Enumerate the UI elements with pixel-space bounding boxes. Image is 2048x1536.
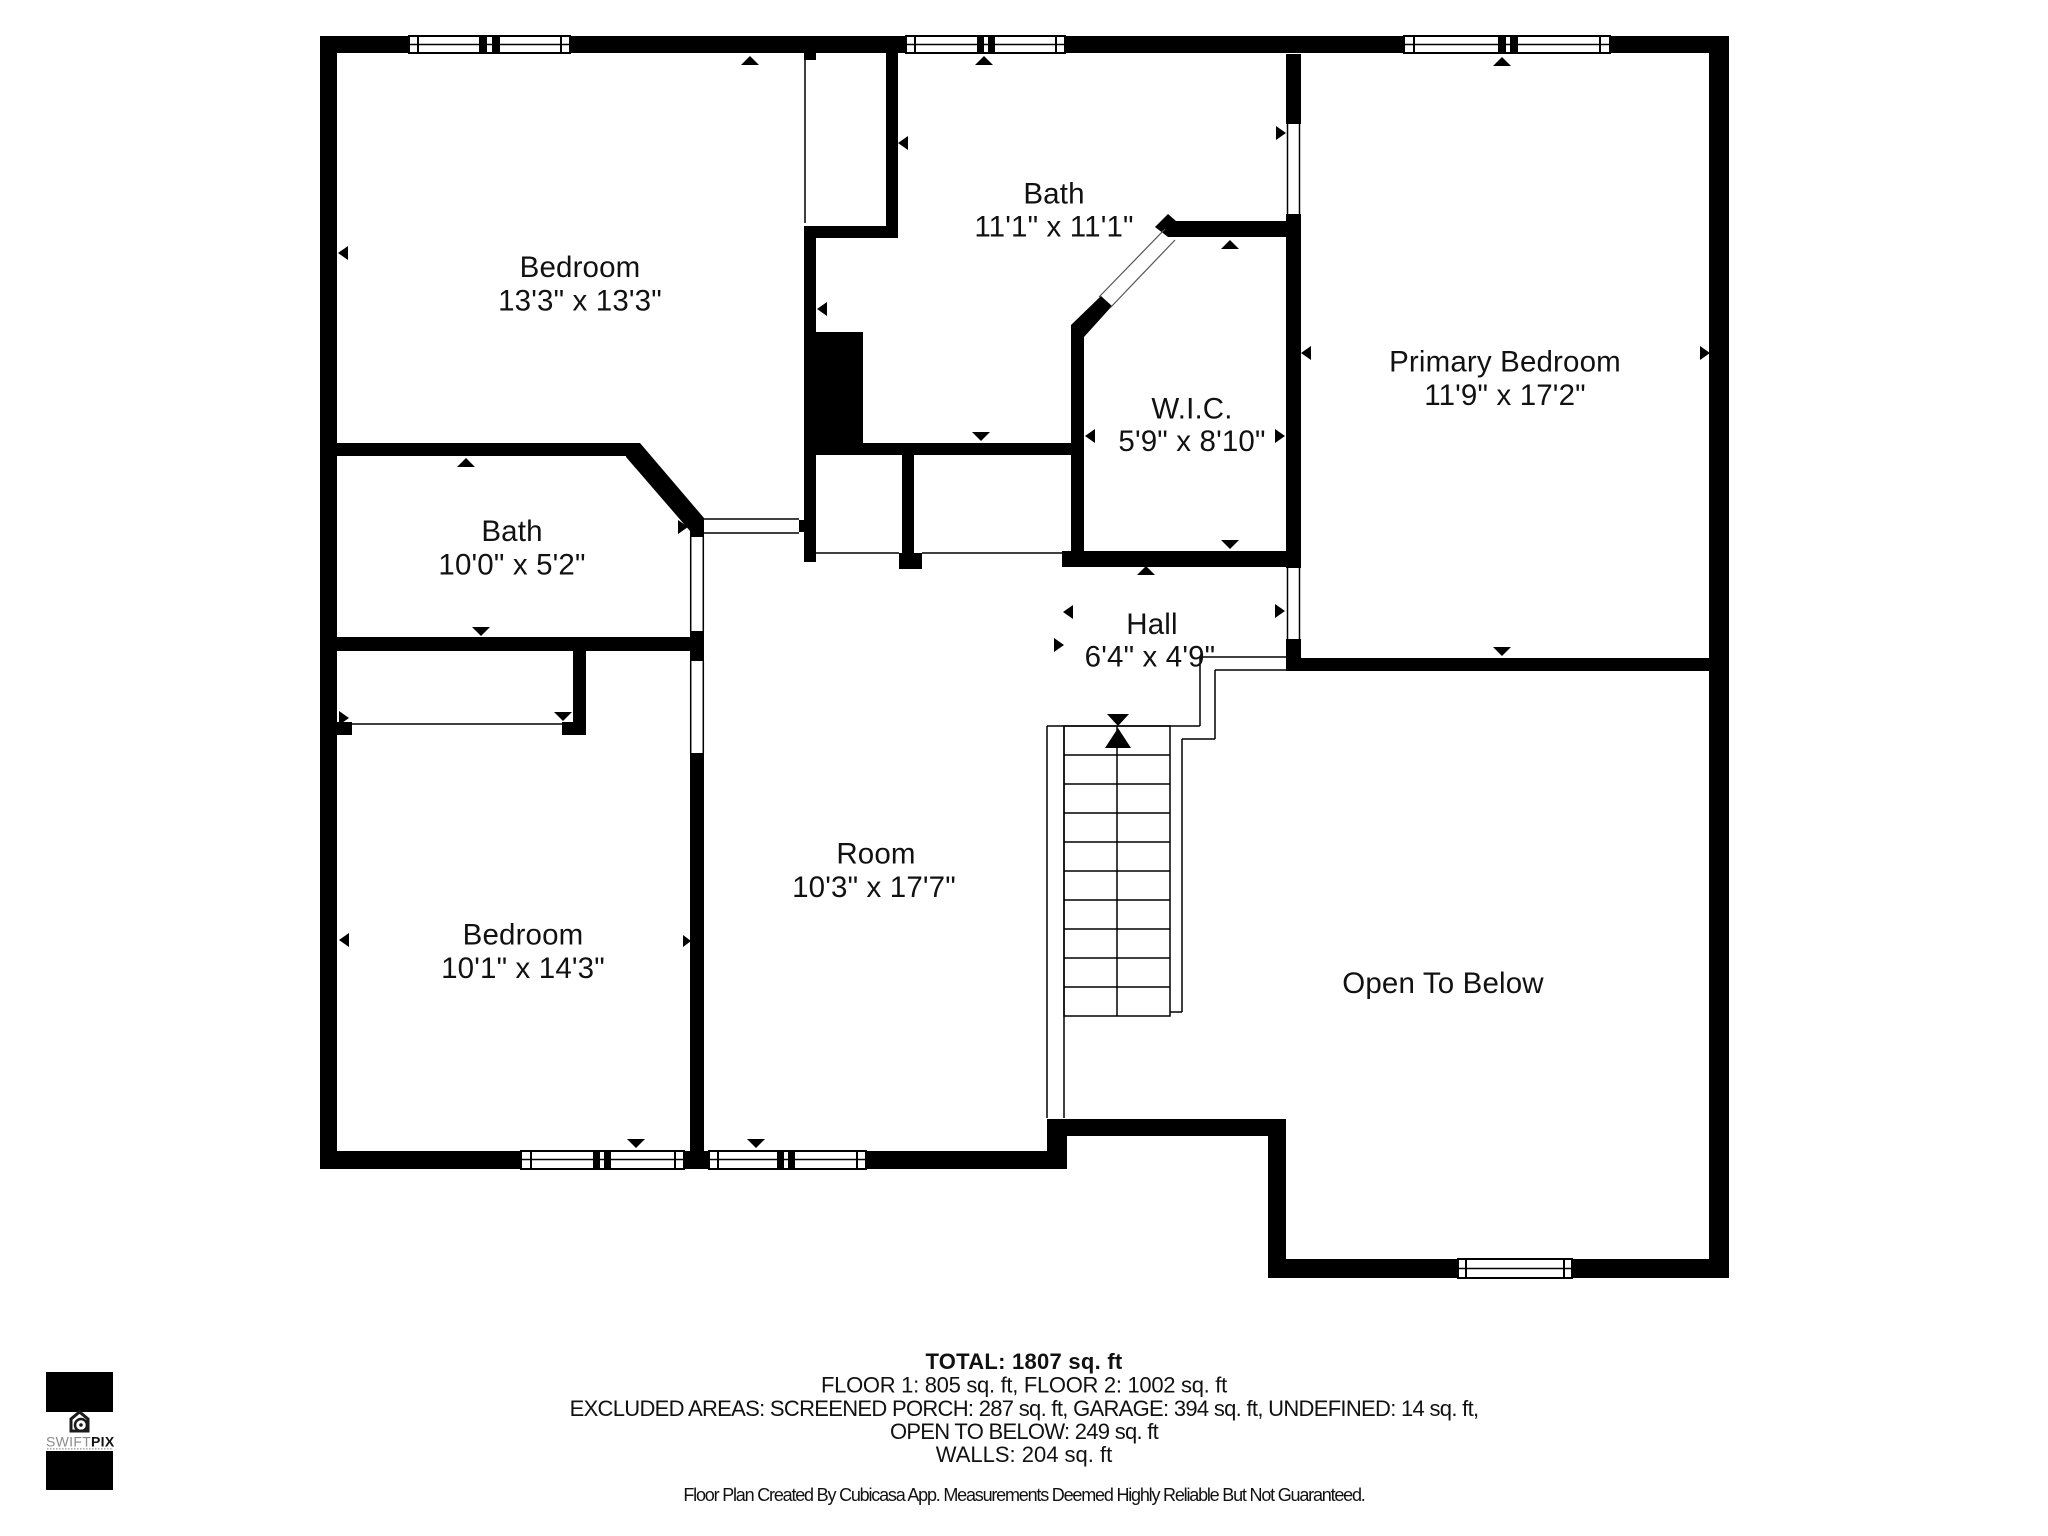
svg-text:11'1" x 11'1": 11'1" x 11'1"	[974, 211, 1133, 244]
svg-text:SWIFTPIX: SWIFTPIX	[46, 1434, 115, 1450]
svg-text:Open To Below: Open To Below	[1342, 967, 1544, 1000]
svg-text:Primary Bedroom: Primary Bedroom	[1389, 346, 1621, 379]
svg-text:Bath: Bath	[481, 515, 542, 548]
svg-text:Room: Room	[836, 838, 915, 871]
svg-text:Bath: Bath	[1023, 178, 1084, 211]
svg-text:Bedroom: Bedroom	[520, 251, 641, 284]
svg-text:10'0" x 5'2": 10'0" x 5'2"	[438, 549, 585, 582]
svg-text:W.I.C.: W.I.C.	[1151, 393, 1232, 426]
svg-text:WALLS: 204 sq. ft: WALLS: 204 sq. ft	[936, 1442, 1113, 1467]
svg-text:Floor Plan Created By Cubicasa: Floor Plan Created By Cubicasa App. Meas…	[683, 1485, 1364, 1505]
svg-text:5'9" x 8'10": 5'9" x 8'10"	[1118, 425, 1265, 458]
svg-text:Hall: Hall	[1126, 608, 1177, 641]
svg-text:10'3" x 17'7": 10'3" x 17'7"	[792, 871, 956, 904]
svg-text:FLOOR 1: 805 sq. ft, FLOOR 2:: FLOOR 1: 805 sq. ft, FLOOR 2: 1002 sq. f…	[821, 1373, 1227, 1398]
svg-text:Bedroom: Bedroom	[463, 919, 584, 952]
svg-text:13'3" x 13'3": 13'3" x 13'3"	[498, 285, 662, 318]
svg-text:10'1" x 14'3": 10'1" x 14'3"	[441, 952, 605, 985]
svg-text:OPEN TO BELOW: 249 sq. ft: OPEN TO BELOW: 249 sq. ft	[890, 1419, 1159, 1444]
svg-text:EXCLUDED AREAS: SCREENED PORCH: EXCLUDED AREAS: SCREENED PORCH: 287 sq. …	[570, 1396, 1479, 1421]
svg-text:TOTAL: 1807 sq. ft: TOTAL: 1807 sq. ft	[925, 1349, 1122, 1374]
svg-text:6'4" x 4'9": 6'4" x 4'9"	[1085, 641, 1216, 674]
svg-text:11'9" x 17'2": 11'9" x 17'2"	[1424, 379, 1586, 412]
